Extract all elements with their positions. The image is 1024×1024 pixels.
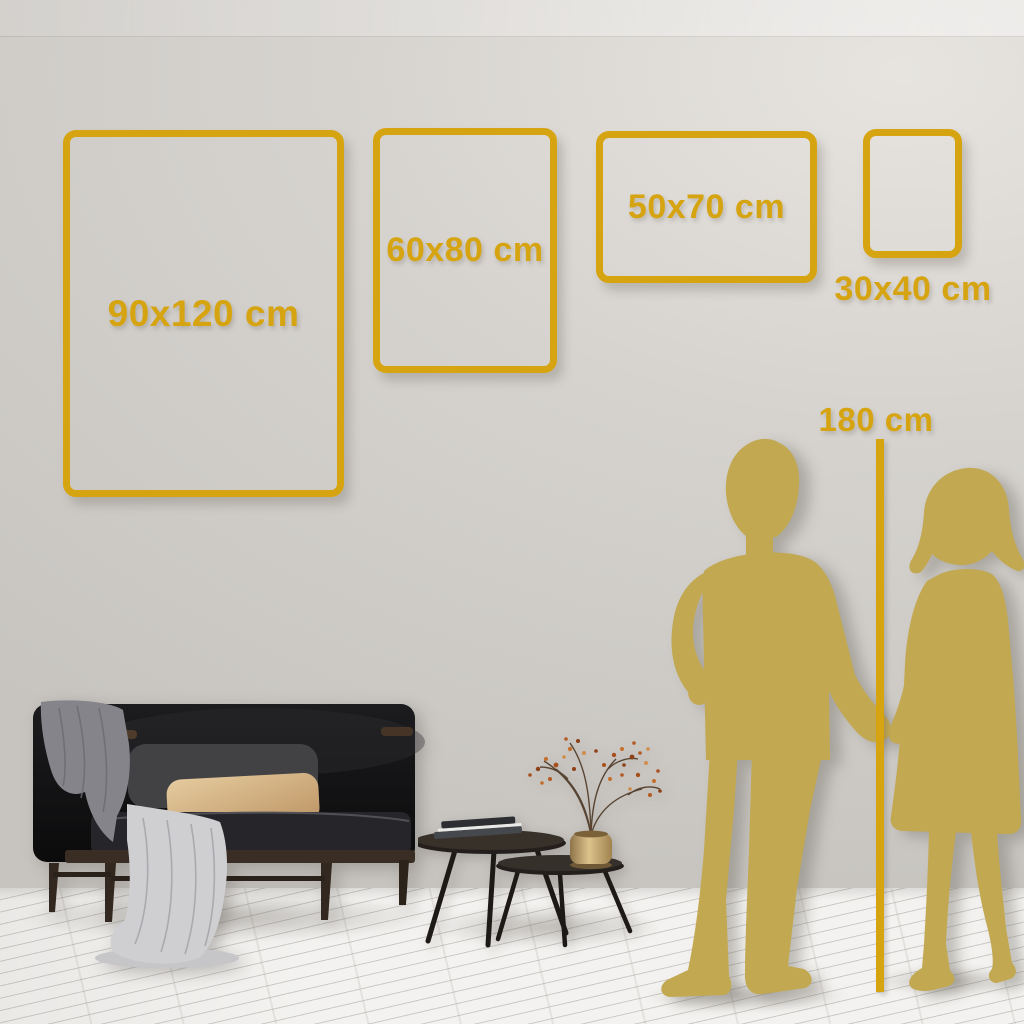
sofa-arm-rail-right bbox=[381, 727, 413, 736]
size-label-30x40-wrap: 30x40 cm bbox=[828, 270, 998, 309]
size-guide-scene: 90x120 cm 60x80 cm 50x70 cm 30x40 cm 180… bbox=[0, 0, 1024, 1024]
size-label-30x40: 30x40 cm bbox=[834, 270, 991, 308]
size-label-60x80: 60x80 cm bbox=[386, 231, 543, 270]
size-frame-60x80: 60x80 cm bbox=[373, 128, 557, 373]
woman-silhouette bbox=[889, 468, 1024, 991]
ceiling-line bbox=[0, 0, 1024, 37]
sofa-leg bbox=[49, 863, 59, 912]
sofa-leg bbox=[105, 863, 116, 922]
size-label-90x120: 90x120 cm bbox=[108, 293, 300, 335]
height-label: 180 cm bbox=[806, 401, 946, 439]
size-frame-30x40 bbox=[863, 129, 962, 258]
size-frame-50x70: 50x70 cm bbox=[596, 131, 817, 283]
vase-rim bbox=[574, 831, 608, 838]
sofa-leg bbox=[399, 860, 409, 905]
brass-vase bbox=[570, 833, 612, 864]
size-label-50x70: 50x70 cm bbox=[628, 188, 785, 227]
wood-base-rail bbox=[65, 850, 415, 863]
couple-silhouette bbox=[640, 430, 1024, 1010]
sofa-illustration bbox=[15, 700, 425, 970]
small-table-legs bbox=[498, 869, 630, 945]
sofa-leg bbox=[321, 863, 332, 920]
height-ruler-line bbox=[876, 439, 884, 992]
size-frame-90x120: 90x120 cm bbox=[63, 130, 344, 497]
sofa-stretcher bbox=[53, 872, 111, 877]
man-silhouette bbox=[661, 439, 890, 997]
coffee-tables-illustration bbox=[418, 735, 668, 950]
